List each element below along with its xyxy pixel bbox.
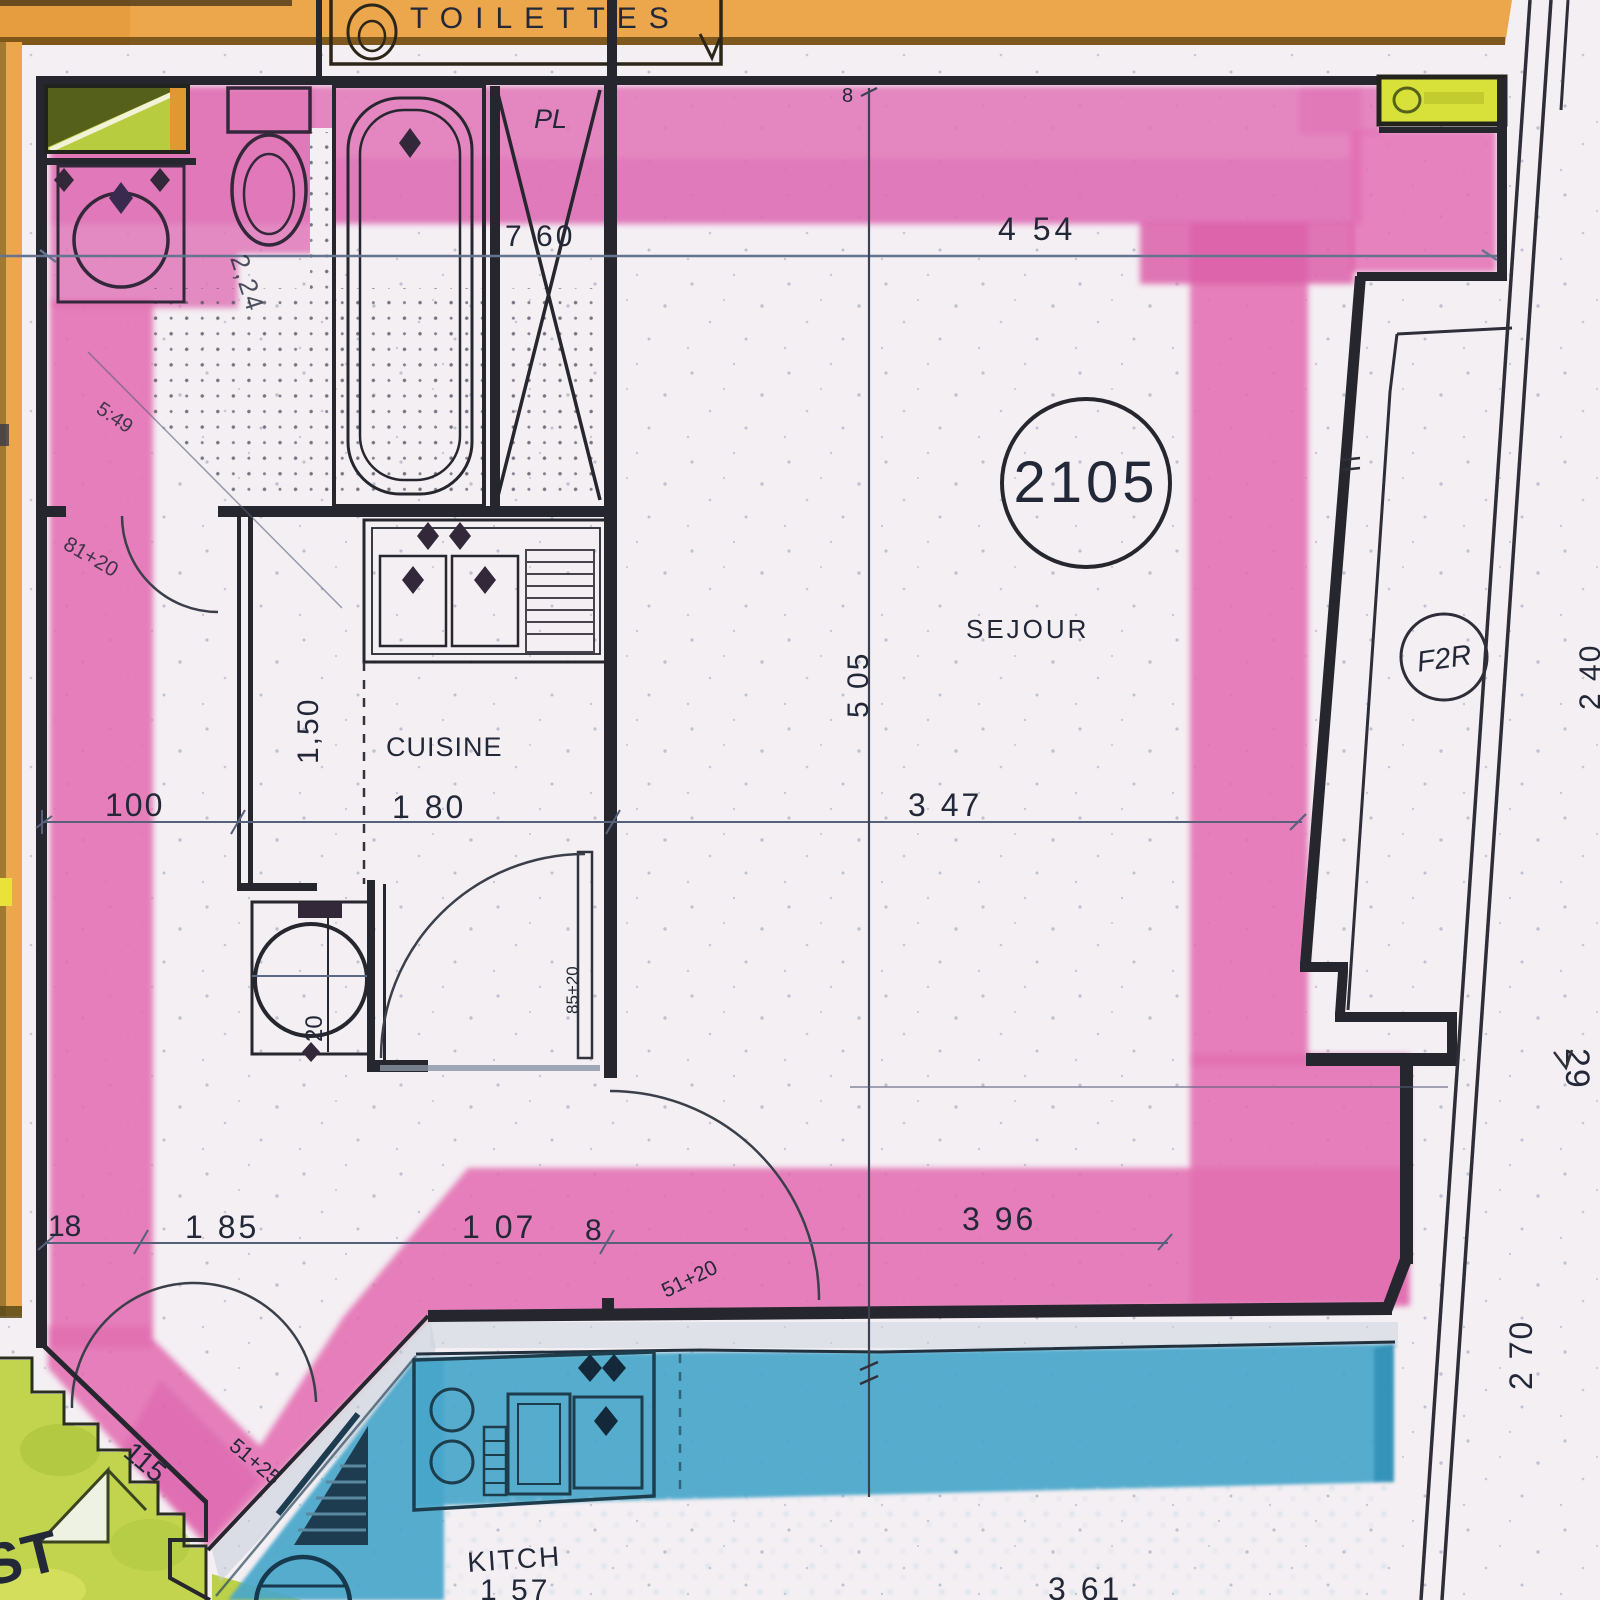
svg-text:85+20: 85+20 [563,966,582,1014]
svg-text:2 70: 2 70 [1503,1320,1539,1390]
svg-text:7 60: 7 60 [505,220,575,253]
svg-text:2105: 2105 [1013,450,1158,515]
svg-text:SEJOUR: SEJOUR [966,614,1089,644]
svg-text:20: 20 [301,1015,328,1042]
svg-text:2 40: 2 40 [1574,644,1600,710]
svg-text:1 07: 1 07 [462,1209,536,1245]
svg-text:1 85: 1 85 [185,1209,259,1245]
svg-text:1,50: 1,50 [292,698,325,764]
svg-text:1 57: 1 57 [480,1574,550,1600]
svg-text:TOILETTES: TOILETTES [410,2,681,35]
svg-text:3 47: 3 47 [908,787,982,823]
svg-text:CUISINE: CUISINE [386,732,503,762]
svg-text:3 61: 3 61 [1048,1571,1122,1600]
svg-text:4 54: 4 54 [998,211,1076,247]
svg-text:8: 8 [842,85,853,107]
svg-text:PL: PL [534,104,567,134]
svg-text:100: 100 [105,787,164,823]
svg-text:29: 29 [1558,1048,1596,1090]
svg-text:3 96: 3 96 [962,1201,1036,1237]
svg-text:1 80: 1 80 [392,789,466,825]
svg-text:8: 8 [585,1214,602,1247]
svg-text:5 05: 5 05 [842,652,875,718]
svg-text:18: 18 [48,1210,81,1243]
svg-text:KITCH: KITCH [466,1541,562,1578]
